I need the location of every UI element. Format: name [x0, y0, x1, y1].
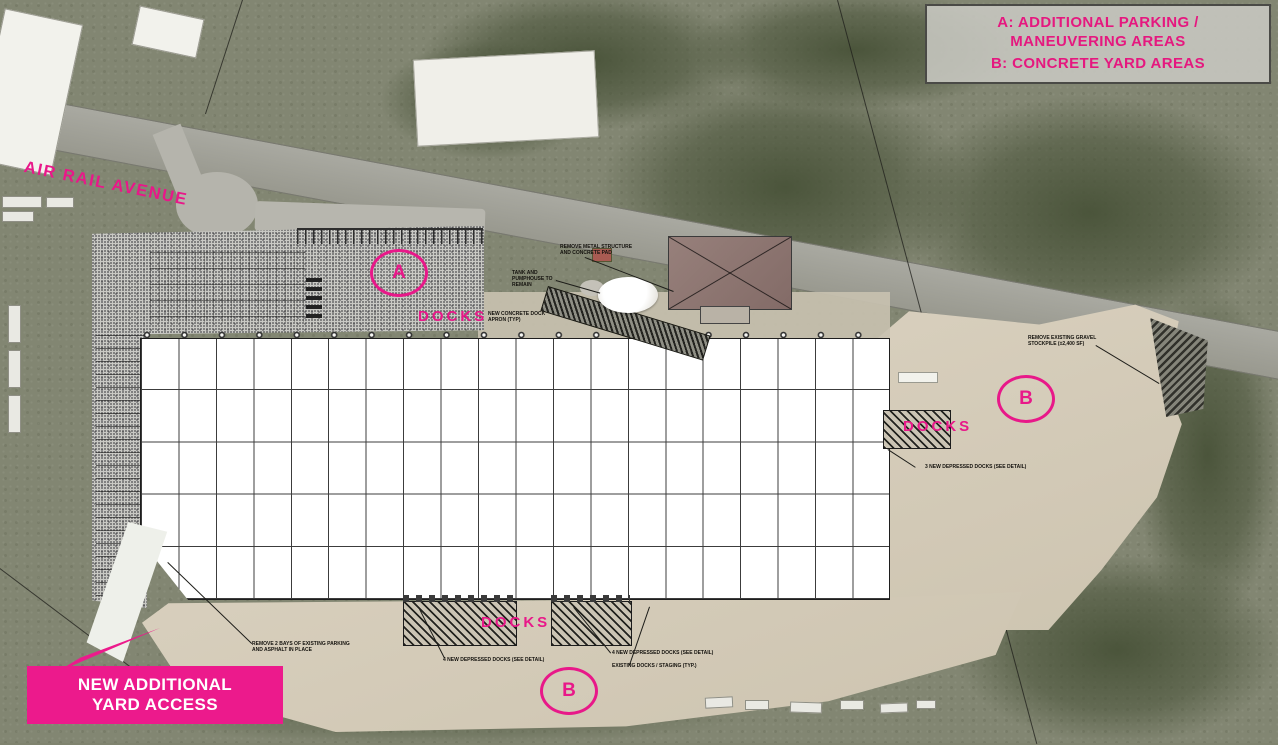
plan-note: TANK AND PUMPHOUSE TO REMAIN [512, 270, 570, 288]
legend-entry-a: A: ADDITIONAL PARKING / MANEUVERING AREA… [997, 14, 1198, 52]
docks-label-north: DOCKS [418, 308, 487, 325]
legend-entry-b: B: CONCRETE YARD AREAS [991, 55, 1205, 74]
vehicle [840, 700, 864, 710]
docks-label-east: DOCKS [903, 418, 972, 435]
trailer [46, 197, 74, 208]
vehicle [745, 700, 769, 710]
concrete-pad [700, 306, 750, 324]
trailer [2, 211, 34, 222]
trailer-stall-comb [297, 228, 483, 244]
parking-stall-lines [150, 252, 305, 322]
vehicle [916, 700, 936, 709]
docks-label-south: DOCKS [481, 614, 550, 631]
metal-structure-roof [668, 236, 792, 310]
plan-note: 3 NEW DEPRESSED DOCKS (SEE DETAIL) [925, 464, 1045, 470]
column-marker-strip [142, 330, 890, 341]
plan-note: NEW CONCRETE DOCK APRON (TYP) [488, 311, 562, 323]
yard-access-callout: NEW ADDITIONAL YARD ACCESS [27, 666, 283, 724]
vehicle [880, 703, 908, 714]
area-marker-b-east: B [997, 375, 1055, 423]
building-footprint [140, 338, 890, 600]
dock-doors [403, 595, 515, 602]
dock-apron-south-2 [551, 601, 632, 646]
legend-box: A: ADDITIONAL PARKING / MANEUVERING AREA… [925, 4, 1271, 84]
plan-note: EXISTING DOCKS / STAGING (TYP.) [612, 663, 722, 669]
area-marker-b-south: B [540, 667, 598, 715]
dock-doors [551, 595, 630, 602]
trailer [8, 305, 21, 343]
plan-note: 4 NEW DEPRESSED DOCKS (SEE DETAIL) [612, 650, 734, 656]
trailer [8, 395, 21, 433]
dock-canopy [898, 372, 938, 383]
plan-note: REMOVE METAL STRUCTURE AND CONCRETE PAD [560, 244, 638, 256]
vehicle [705, 696, 734, 708]
rooftop [413, 50, 599, 146]
area-marker-a: A [370, 249, 428, 297]
plan-note: 4 NEW DEPRESSED DOCKS (SEE DETAIL) [443, 657, 563, 663]
dock-door-blocks [306, 278, 322, 318]
trailer [2, 196, 42, 208]
vehicle [790, 701, 822, 713]
trailer [8, 350, 21, 388]
plan-note: REMOVE 2 BAYS OF EXISTING PARKING AND AS… [252, 641, 352, 653]
plan-note: REMOVE EXISTING GRAVEL STOCKPILE (±2,400… [1028, 335, 1108, 347]
